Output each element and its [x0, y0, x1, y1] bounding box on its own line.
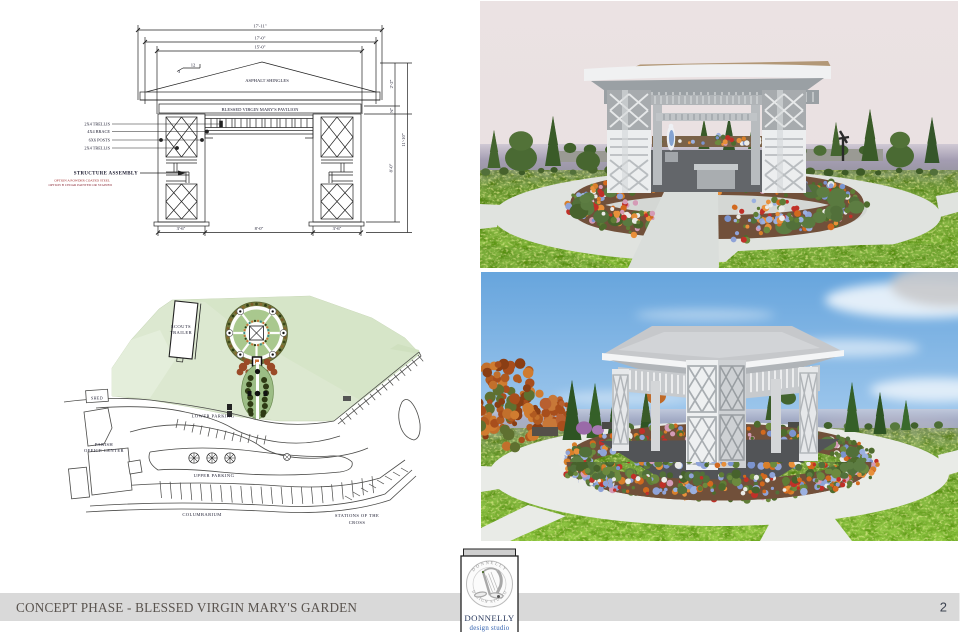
svg-text:STATIONS OF THE: STATIONS OF THE — [335, 513, 379, 518]
svg-text:4X4 BRACE: 4X4 BRACE — [87, 129, 110, 134]
svg-text:8'-0": 8'-0" — [389, 163, 394, 172]
svg-text:SCOUTS: SCOUTS — [171, 324, 191, 329]
svg-text:SHED: SHED — [91, 396, 103, 401]
svg-text:2X4 TRELLIS: 2X4 TRELLIS — [84, 146, 110, 151]
svg-text:UPPER PARKING: UPPER PARKING — [194, 473, 235, 478]
svg-text:3'-6": 3'-6" — [333, 226, 342, 231]
svg-text:DONNELLY: DONNELLY — [464, 613, 514, 623]
svg-text:2: 2 — [940, 600, 947, 615]
svg-text:BLESSED VIRGIN MARY'S PAVILION: BLESSED VIRGIN MARY'S PAVILION — [222, 107, 300, 112]
svg-text:design studio: design studio — [470, 625, 510, 632]
svg-text:⅝": ⅝" — [389, 108, 394, 113]
svg-text:12: 12 — [191, 63, 196, 68]
svg-text:17'-11": 17'-11" — [253, 24, 266, 29]
svg-text:COLUMBARIUM: COLUMBARIUM — [182, 512, 221, 517]
svg-text:2'-2": 2'-2" — [389, 79, 394, 88]
svg-text:STRUCTURE ASSEMBLY: STRUCTURE ASSEMBLY — [74, 172, 138, 177]
svg-text:11'-10": 11'-10" — [401, 133, 406, 146]
svg-text:PARISH: PARISH — [95, 442, 114, 447]
svg-text:CROSS: CROSS — [349, 520, 366, 525]
svg-text:TRAILER: TRAILER — [170, 330, 193, 335]
svg-text:6X6 POSTS: 6X6 POSTS — [89, 138, 111, 143]
svg-text:OFFICE CENTER: OFFICE CENTER — [84, 448, 125, 453]
svg-text:17'-0": 17'-0" — [254, 36, 265, 41]
svg-text:OPTION B CEDAR PAINTED OR STA: OPTION B CEDAR PAINTED OR STAINED — [48, 183, 112, 187]
svg-text:2X4 TRELLIS: 2X4 TRELLIS — [84, 122, 110, 127]
svg-text:3'-6": 3'-6" — [177, 226, 186, 231]
svg-text:15'-0": 15'-0" — [254, 45, 265, 50]
svg-text:CONCEPT PHASE - BLESSED VIRGIN: CONCEPT PHASE - BLESSED VIRGIN MARY'S GA… — [16, 600, 357, 615]
svg-text:ASPHALT SHINGLES: ASPHALT SHINGLES — [245, 78, 289, 83]
svg-text:LOWER PARKING: LOWER PARKING — [192, 414, 235, 419]
svg-text:8'-0": 8'-0" — [255, 226, 264, 231]
